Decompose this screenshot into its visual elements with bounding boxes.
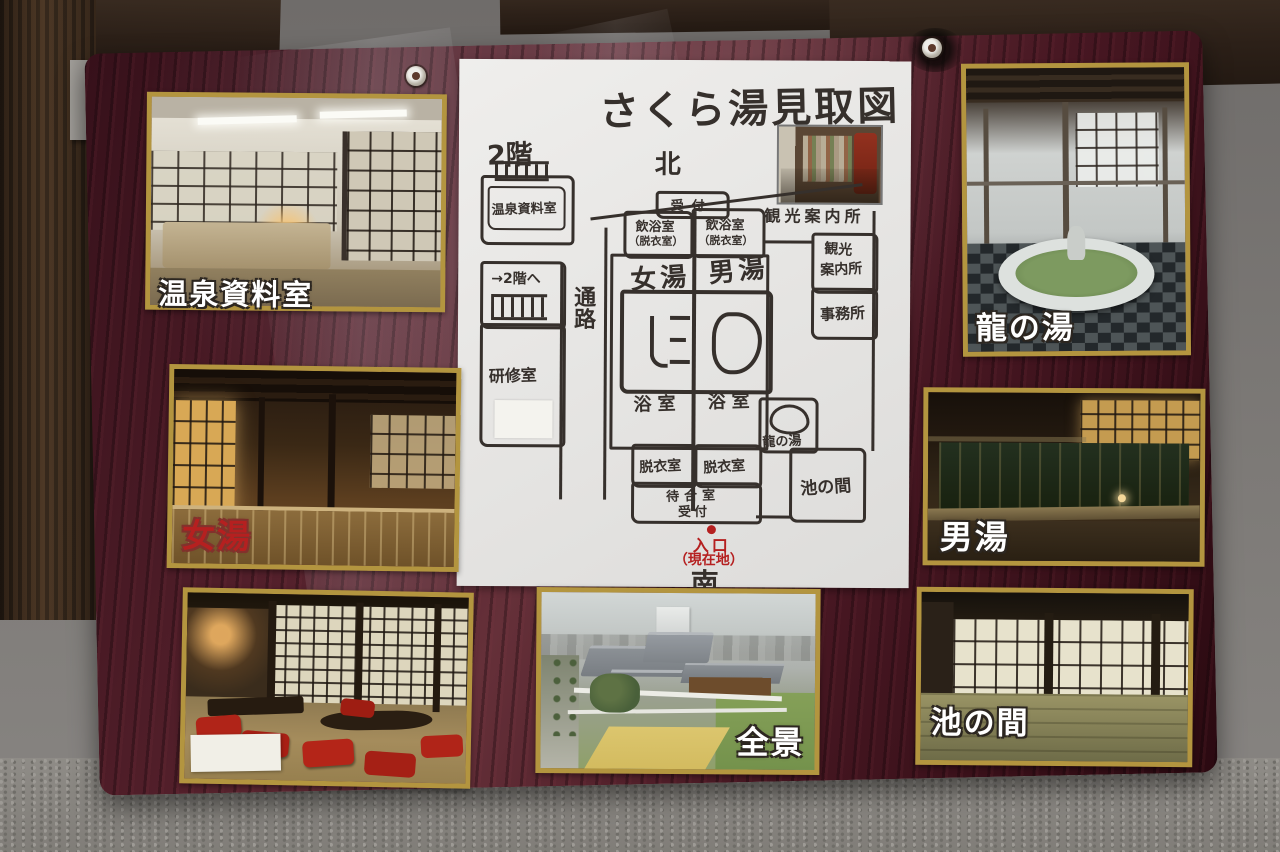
wall-frame <box>1162 107 1168 243</box>
wall-frame <box>1062 102 1069 249</box>
dressing-room-label: 脱衣室 <box>703 455 746 478</box>
fountain-spout <box>1067 226 1085 260</box>
photo-panorama: 全景 <box>535 587 820 775</box>
mens-bath-label: 男湯 <box>707 247 770 290</box>
pond-room-label: 池の間 <box>799 471 852 499</box>
sand-ground <box>582 726 729 770</box>
photo-label-panorama: 全景 <box>736 717 804 763</box>
photo-womens-bath: 女湯 <box>167 364 462 572</box>
wood-beam-top <box>500 0 871 35</box>
training-room-label: 研修室 <box>488 361 537 386</box>
drink-bath-sublabel: （脱衣室） <box>628 233 683 249</box>
room-archive-inner-box: 温泉資料室 <box>487 186 565 230</box>
inset-photo-floor <box>781 168 879 203</box>
corridor-wall-line <box>559 263 563 499</box>
blank-sticker <box>190 734 280 773</box>
low-table <box>208 696 304 716</box>
photo-archive-room: 温泉資料室 <box>145 92 447 313</box>
red-cushion <box>420 734 463 758</box>
bathroom-label-right: 浴室 <box>707 387 756 414</box>
photo-label-archive: 温泉資料室 <box>158 271 313 314</box>
bright-window <box>1075 113 1158 187</box>
blank-sticker <box>494 400 552 438</box>
trees <box>549 659 577 737</box>
red-cushion <box>364 751 416 779</box>
photo-tatami-lounge <box>179 587 474 789</box>
lamp-glow-wall <box>186 607 272 698</box>
pool-water <box>939 443 1190 511</box>
window-grid-right <box>342 132 442 262</box>
office-label: 事務所 <box>820 302 866 325</box>
wall-line <box>756 515 792 518</box>
inset-photo-caption: 観光案内所 <box>765 202 865 227</box>
photo-dragon-bath: 龍の湯 <box>961 62 1191 357</box>
wood-pillar <box>257 397 265 513</box>
tub-shape-women <box>670 316 690 320</box>
wall-line <box>763 240 813 243</box>
room-to2f-box: →2階へ <box>480 261 566 329</box>
ceiling-beams <box>966 67 1184 102</box>
photo-of-information-board: さくら湯見取図 北 観光案内所 2階 温泉資料室 →2階へ 研修室 通路 <box>0 0 1280 852</box>
fluorescent-light <box>198 115 297 125</box>
screw <box>922 38 942 58</box>
low-table <box>320 710 433 730</box>
photo-mens-bath: 男湯 <box>923 387 1206 566</box>
wood-post <box>1044 613 1054 697</box>
room-archive-box: 温泉資料室 <box>480 175 574 245</box>
drink-bath-label: 飲浴室 <box>705 214 744 233</box>
to-second-floor-label: →2階へ <box>491 268 541 288</box>
screw <box>406 66 426 86</box>
corridor-wall-line <box>603 228 607 500</box>
waiting-room-box: 待合室 受付 <box>631 482 762 525</box>
reception-bottom-label: 受付 <box>678 501 710 520</box>
drink-bath-left-box: 飲浴室 （脱衣室） <box>623 211 693 259</box>
ceiling-beams <box>174 369 456 404</box>
dressing-room-label: 脱衣室 <box>639 455 682 477</box>
room-training-box: 研修室 <box>479 323 566 447</box>
tub-shape-women <box>670 360 690 364</box>
shoji-panels <box>370 414 456 489</box>
photo-label-mens-bath: 男湯 <box>940 510 1010 558</box>
pond-room-box: 池の間 <box>789 448 866 523</box>
garden-trees <box>590 673 640 712</box>
tourist-info-label: 案内所 <box>820 258 863 280</box>
photo-label-dragon-bath: 龍の湯 <box>976 302 1075 348</box>
photo-label-womens-bath: 女湯 <box>182 509 253 558</box>
tourist-info-box: 観光 案内所 <box>811 233 878 294</box>
bright-windows <box>172 400 236 517</box>
dragon-bath-box: 龍の湯 <box>758 397 818 453</box>
office-box: 事務所 <box>811 288 878 340</box>
photo-label-pond-room: 池の間 <box>930 697 1029 743</box>
floor-plan-paper: さくら湯見取図 北 観光案内所 2階 温泉資料室 →2階へ 研修室 通路 <box>457 59 912 588</box>
tub-shape-women <box>650 316 668 368</box>
tub-box <box>620 290 774 395</box>
photo-pond-room: 池の間 <box>915 587 1194 767</box>
corridor-label: 通路 <box>566 285 598 329</box>
drink-bath-sublabel: （脱衣室） <box>698 232 753 248</box>
red-cushion <box>302 738 354 767</box>
wood-pillar <box>327 394 336 518</box>
display-table <box>162 222 331 269</box>
photo-art <box>184 592 469 783</box>
tub-shape-women <box>670 338 686 342</box>
room-archive-label: 温泉資料室 <box>491 197 557 218</box>
tub-shape-men <box>712 312 762 374</box>
pool-far-edge <box>928 436 1086 442</box>
tourist-info-label: 観光 <box>824 238 853 260</box>
compass-north-label: 北 <box>655 144 681 181</box>
stairs-icon <box>491 294 547 320</box>
wall-frame <box>984 108 990 244</box>
bathroom-label-left: 浴室 <box>633 389 682 416</box>
upper-roof <box>642 632 713 664</box>
wood-post <box>1150 614 1160 701</box>
